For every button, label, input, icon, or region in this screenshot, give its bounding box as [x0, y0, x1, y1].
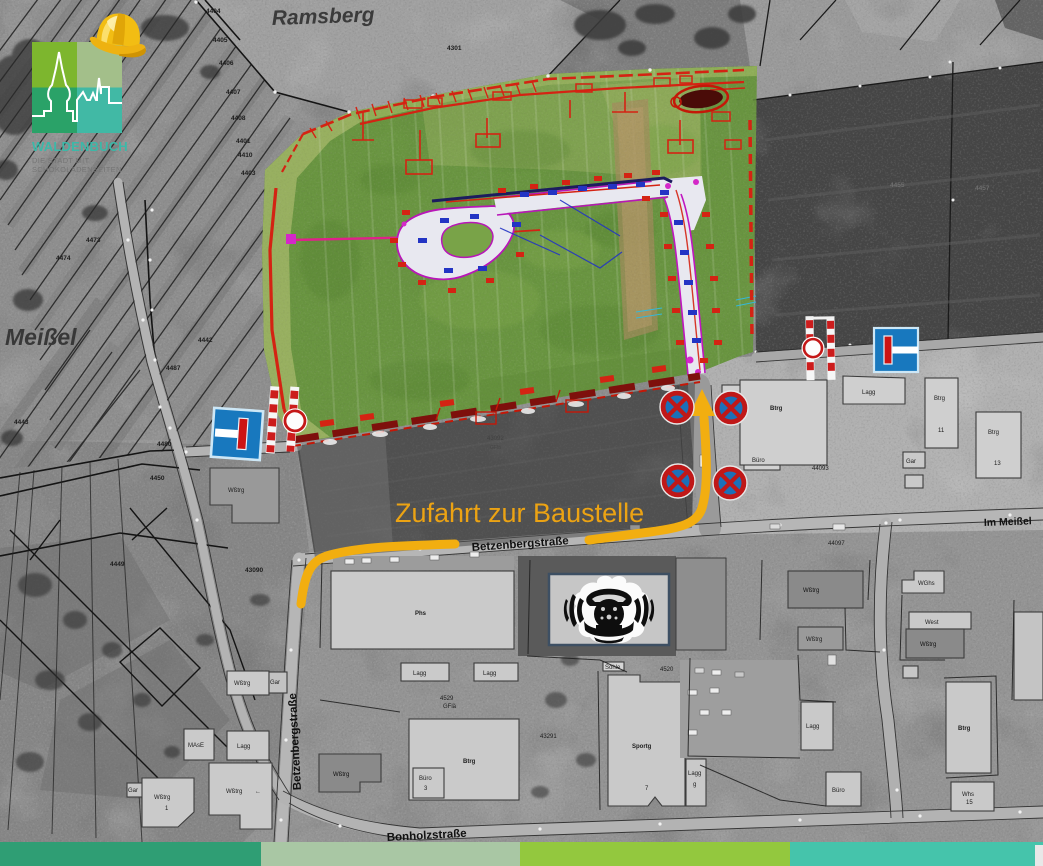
- svg-text:4443: 4443: [14, 419, 29, 426]
- svg-text:Wßtrg: Wßtrg: [154, 795, 170, 801]
- svg-text:MAsE: MAsE: [188, 743, 204, 749]
- svg-text:4449: 4449: [110, 561, 125, 568]
- svg-text:4404: 4404: [206, 8, 221, 15]
- svg-text:Wßtrg: Wßtrg: [234, 681, 250, 687]
- svg-text:Lagg: Lagg: [483, 671, 496, 677]
- svg-text:Meißel: Meißel: [5, 324, 77, 350]
- svg-text:Wßtrg: Wßtrg: [806, 637, 822, 643]
- svg-text:Wßtrg: Wßtrg: [226, 789, 242, 795]
- svg-text:44097: 44097: [828, 541, 845, 547]
- svg-text:Zufahrt zur Baustelle: Zufahrt zur Baustelle: [395, 498, 644, 528]
- svg-text:Lagg: Lagg: [688, 771, 701, 777]
- svg-text:WALDENBUCH: WALDENBUCH: [32, 139, 128, 154]
- svg-text:WGhs: WGhs: [918, 581, 935, 587]
- svg-text:Btrg: Btrg: [958, 726, 971, 732]
- svg-text:11: 11: [938, 428, 945, 434]
- svg-text:4457: 4457: [975, 185, 990, 192]
- svg-text:4401: 4401: [236, 138, 251, 145]
- svg-text:Büro: Büro: [419, 776, 432, 782]
- svg-text:Btrg: Btrg: [463, 759, 476, 765]
- svg-text:Wßtrg: Wßtrg: [920, 642, 936, 648]
- svg-text:Büro: Büro: [752, 458, 765, 464]
- svg-text:Btrg: Btrg: [770, 406, 783, 412]
- svg-text:15: 15: [966, 800, 973, 806]
- svg-text:Wßtrg: Wßtrg: [333, 772, 349, 778]
- svg-text:Gar: Gar: [270, 680, 280, 686]
- svg-text:Btrg: Btrg: [934, 396, 945, 402]
- svg-text:Lagg: Lagg: [413, 671, 426, 677]
- svg-text:Im Meißel: Im Meißel: [984, 515, 1032, 529]
- svg-text:4410: 4410: [238, 152, 253, 159]
- svg-text:13: 13: [994, 461, 1001, 467]
- svg-text:Gar: Gar: [128, 788, 138, 794]
- svg-text:43090: 43090: [245, 567, 263, 574]
- svg-text:g: g: [693, 782, 696, 788]
- svg-text:4408: 4408: [231, 115, 246, 122]
- svg-text:Lagg: Lagg: [806, 724, 819, 730]
- svg-text:4442: 4442: [198, 337, 213, 344]
- svg-text:Whs: Whs: [962, 792, 974, 798]
- svg-text:Ramsberg: Ramsberg: [271, 3, 375, 30]
- svg-text:4455: 4455: [890, 182, 905, 189]
- svg-text:Phs: Phs: [415, 611, 427, 617]
- svg-text:4405: 4405: [213, 37, 228, 44]
- svg-text:GFlä: GFlä: [443, 704, 457, 710]
- svg-text:Btrg: Btrg: [988, 430, 999, 436]
- svg-text:Sportg: Sportg: [632, 744, 652, 750]
- svg-text:44093: 44093: [812, 466, 829, 472]
- svg-text:4403: 4403: [241, 170, 256, 177]
- svg-text:DIE STADT MIT: DIE STADT MIT: [32, 156, 89, 165]
- svg-text:4407: 4407: [226, 89, 241, 96]
- svg-text:Lagg: Lagg: [862, 390, 875, 396]
- svg-text:4487: 4487: [166, 365, 181, 372]
- svg-text:Büro: Büro: [832, 788, 845, 794]
- svg-text:4301: 4301: [447, 45, 462, 52]
- svg-text:SCHOKOLADENSEITEN: SCHOKOLADENSEITEN: [32, 165, 122, 174]
- svg-text:West: West: [925, 620, 939, 626]
- svg-text:4529: 4529: [440, 696, 454, 702]
- svg-text:4450: 4450: [150, 475, 165, 482]
- svg-text:4474: 4474: [56, 255, 71, 262]
- svg-text:←: ←: [255, 789, 261, 795]
- svg-text:43291: 43291: [540, 734, 557, 740]
- svg-text:Wßtrg: Wßtrg: [803, 588, 819, 594]
- svg-text:Gar: Gar: [906, 459, 916, 465]
- svg-text:4406: 4406: [219, 60, 234, 67]
- svg-text:4520: 4520: [660, 667, 674, 673]
- svg-text:Wßtrg: Wßtrg: [228, 488, 244, 494]
- svg-text:4473: 4473: [86, 237, 101, 244]
- svg-text:Lagg: Lagg: [237, 744, 250, 750]
